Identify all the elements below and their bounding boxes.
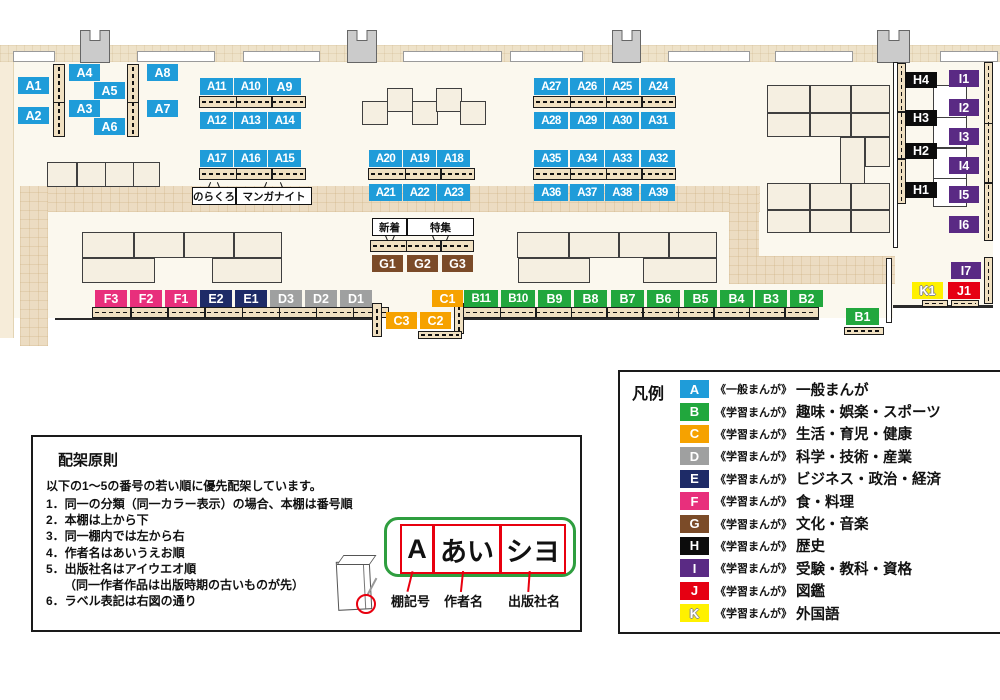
shelf-marker-A36: A36 <box>534 184 568 201</box>
reading-table <box>517 232 717 258</box>
shelf-marker-H4: H4 <box>905 72 937 88</box>
rule-line: 4．作者名はあいうえお順 <box>46 545 391 561</box>
shelf-marker-B2: B2 <box>790 290 823 307</box>
reading-table <box>643 258 717 283</box>
shelf-marker-B6: B6 <box>647 290 680 307</box>
reading-table <box>840 137 865 184</box>
shelf-marker-A26: A26 <box>570 78 604 95</box>
legend-type: 《学習まんが》 <box>715 471 792 487</box>
pillar <box>347 30 377 63</box>
legend-category: 趣味・娯楽・スポーツ <box>796 401 941 422</box>
book-top-edge <box>336 555 376 565</box>
bookshelf <box>127 64 139 137</box>
legend-chip-B: B <box>680 403 709 421</box>
legend-chip-J: J <box>680 582 709 600</box>
shelf-marker-A16: A16 <box>234 150 267 167</box>
shelf-marker-A34: A34 <box>570 150 604 167</box>
legend-box: 凡例 A《一般まんが》一般まんがB《学習まんが》趣味・娯楽・スポーツC《学習まん… <box>618 370 1000 634</box>
shelf-marker-A19: A19 <box>403 150 436 167</box>
shelf-marker-A29: A29 <box>570 112 604 129</box>
pillar <box>80 30 110 63</box>
shelf-marker-A13: A13 <box>234 112 267 129</box>
window <box>137 51 215 62</box>
shelf-marker-I2: I2 <box>949 99 979 116</box>
reading-table <box>436 88 462 112</box>
bookshelf <box>951 300 979 307</box>
left-wall <box>0 62 14 338</box>
legend-rows: A《一般まんが》一般まんがB《学習まんが》趣味・娯楽・スポーツC《学習まんが》生… <box>680 378 941 624</box>
shelf-marker-A30: A30 <box>605 112 639 129</box>
bookshelf <box>418 331 462 339</box>
shelf-marker-A12: A12 <box>200 112 233 129</box>
shelf-marker-A39: A39 <box>641 184 675 201</box>
shelf-marker-A23: A23 <box>437 184 470 201</box>
shelf-marker-A8: A8 <box>147 64 178 81</box>
reading-table <box>518 258 590 283</box>
shelf-marker-H2: H2 <box>905 143 937 159</box>
legend-type: 《学習まんが》 <box>715 560 792 576</box>
shelf-marker-B3: B3 <box>755 290 787 307</box>
rule-line: 3．同一棚内では左から右 <box>46 528 391 544</box>
shelf-marker-I5: I5 <box>949 186 979 203</box>
callout-label: マンガナイト <box>236 187 312 205</box>
shelf-marker-A17: A17 <box>200 150 233 167</box>
legend-category: 受験・教科・資格 <box>796 558 912 579</box>
shelf-marker-I1: I1 <box>949 70 979 87</box>
wall-segment <box>886 258 892 323</box>
reading-table <box>387 88 413 112</box>
bookshelf <box>984 257 993 304</box>
label-location-circle <box>356 594 376 614</box>
shelf-marker-H1: H1 <box>905 182 937 198</box>
legend-category: 文化・音楽 <box>796 513 869 534</box>
bookshelf <box>370 240 474 252</box>
shelf-marker-A24: A24 <box>641 78 675 95</box>
shelf-marker-G2: G2 <box>407 255 438 272</box>
legend-row-C: C《学習まんが》生活・育児・健康 <box>680 423 941 445</box>
shelf-marker-A6: A6 <box>94 118 125 135</box>
shelf-marker-A9: A9 <box>268 78 301 95</box>
legend-chip-D: D <box>680 447 709 465</box>
rule-line: 2．本棚は上から下 <box>46 512 391 528</box>
legend-chip-I: I <box>680 559 709 577</box>
shelf-marker-A32: A32 <box>641 150 675 167</box>
shelf-marker-F2: F2 <box>130 290 162 307</box>
legend-row-H: H《学習まんが》歴史 <box>680 535 941 557</box>
shelf-marker-A31: A31 <box>641 112 675 129</box>
caption-author: 作者名 <box>444 591 483 610</box>
legend-chip-H: H <box>680 537 709 555</box>
legend-chip-A: A <box>680 380 709 398</box>
reading-table <box>362 101 388 125</box>
legend-category: ビジネス・政治・経済 <box>796 468 941 489</box>
bookshelf <box>533 168 676 180</box>
pillar <box>612 30 641 63</box>
legend-type: 《学習まんが》 <box>715 404 792 420</box>
pillar <box>877 30 910 63</box>
shelf-marker-E2: E2 <box>200 290 232 307</box>
caption-shelf-code: 棚記号 <box>391 591 430 610</box>
shelf-marker-K1: K1 <box>912 282 943 299</box>
reading-table <box>460 101 486 125</box>
window <box>403 51 502 62</box>
legend-type: 《学習まんが》 <box>715 583 792 599</box>
legend-chip-E: E <box>680 470 709 488</box>
legend-type: 《学習まんが》 <box>715 516 792 532</box>
legend-category: 歴史 <box>796 535 825 556</box>
shelf-marker-E1: E1 <box>235 290 267 307</box>
reading-table <box>212 258 282 283</box>
shelf-marker-A35: A35 <box>534 150 568 167</box>
shelf-marker-A10: A10 <box>234 78 267 95</box>
window <box>243 51 320 62</box>
bookshelf <box>984 62 993 241</box>
legend-title: 凡例 <box>632 380 664 404</box>
reading-table <box>412 101 438 125</box>
shelf-marker-A11: A11 <box>200 78 233 95</box>
legend-chip-C: C <box>680 425 709 443</box>
shelf-marker-I3: I3 <box>949 128 979 145</box>
bookshelf <box>199 96 306 108</box>
legend-chip-K: K <box>680 604 709 622</box>
callout-label: 特集 <box>407 218 474 236</box>
shelf-marker-G1: G1 <box>372 255 403 272</box>
legend-category: 科学・技術・産業 <box>796 446 912 467</box>
shelf-marker-A4: A4 <box>69 64 100 81</box>
caption-publisher: 出版社名 <box>508 591 560 610</box>
legend-chip-G: G <box>680 515 709 533</box>
reading-table <box>767 85 890 137</box>
aisle-carpet <box>729 186 759 258</box>
bookshelf <box>844 327 884 335</box>
shelf-marker-A1: A1 <box>18 77 49 94</box>
legend-type: 《学習まんが》 <box>715 448 792 464</box>
shelf-marker-B1: B1 <box>846 308 879 325</box>
legend-row-B: B《学習まんが》趣味・娯楽・スポーツ <box>680 400 941 422</box>
bookshelf <box>368 168 475 180</box>
legend-category: 外国語 <box>796 603 840 624</box>
shelf-marker-A5: A5 <box>94 82 125 99</box>
shelf-marker-B9: B9 <box>538 290 571 307</box>
legend-chip-F: F <box>680 492 709 510</box>
wall-line <box>55 318 375 320</box>
shelf-marker-A14: A14 <box>268 112 301 129</box>
shelf-marker-A22: A22 <box>403 184 436 201</box>
shelf-marker-H3: H3 <box>905 110 937 126</box>
shelf-marker-A15: A15 <box>268 150 301 167</box>
bookshelf <box>463 307 819 318</box>
shelf-marker-C3: C3 <box>386 312 417 329</box>
label-author-box: あい <box>433 524 501 574</box>
shelf-marker-F3: F3 <box>95 290 127 307</box>
window <box>940 51 998 62</box>
shelf-marker-A2: A2 <box>18 107 49 124</box>
bookshelf <box>53 64 65 137</box>
shelf-marker-A3: A3 <box>69 100 100 117</box>
reading-table <box>767 183 890 233</box>
reading-table <box>47 162 160 187</box>
shelf-marker-B10: B10 <box>501 290 535 307</box>
shelf-marker-A18: A18 <box>437 150 470 167</box>
shelf-marker-I6: I6 <box>949 216 979 233</box>
shelf-marker-B5: B5 <box>684 290 717 307</box>
bookshelf <box>454 303 464 334</box>
bookshelf <box>92 307 389 318</box>
aisle-carpet <box>20 186 48 346</box>
shelf-marker-A38: A38 <box>605 184 639 201</box>
shelf-marker-F1: F1 <box>165 290 197 307</box>
shelf-marker-A28: A28 <box>534 112 568 129</box>
window <box>510 51 583 62</box>
shelf-marker-A33: A33 <box>605 150 639 167</box>
shelf-marker-D2: D2 <box>305 290 337 307</box>
shelf-marker-A20: A20 <box>369 150 402 167</box>
legend-category: 食・料理 <box>796 491 854 512</box>
callout-label: 新着 <box>372 218 407 236</box>
legend-row-I: I《学習まんが》受験・教科・資格 <box>680 557 941 579</box>
legend-category: 生活・育児・健康 <box>796 423 912 444</box>
shelf-marker-B7: B7 <box>611 290 644 307</box>
shelf-marker-J1: J1 <box>948 282 980 299</box>
legend-type: 《学習まんが》 <box>715 605 792 621</box>
rule-line: 1．同一の分類（同一カラー表示）の場合、本棚は番号順 <box>46 496 391 512</box>
shelf-marker-C1: C1 <box>432 290 463 307</box>
reading-table <box>82 232 282 258</box>
window <box>668 51 750 62</box>
reading-table <box>865 137 890 167</box>
callout-label: のらくろ <box>192 187 236 205</box>
bookshelf <box>199 168 306 180</box>
reading-table <box>82 258 155 283</box>
shelf-marker-D3: D3 <box>270 290 302 307</box>
shelf-marker-I4: I4 <box>949 157 979 174</box>
shelf-marker-A37: A37 <box>570 184 604 201</box>
bookshelf <box>533 96 676 108</box>
shelf-marker-B4: B4 <box>720 290 753 307</box>
rules-intro: 以下の1～5の番号の若い順に優先配架しています。 <box>46 477 322 494</box>
bookshelf <box>922 300 948 307</box>
label-publisher-box: シヨ <box>500 524 566 574</box>
window <box>775 51 853 62</box>
aisle-carpet <box>729 256 895 284</box>
rules-title: 配架原則 <box>58 449 118 470</box>
shelf-marker-C2: C2 <box>420 312 451 329</box>
bookshelf <box>372 303 382 337</box>
legend-row-A: A《一般まんが》一般まんが <box>680 378 941 400</box>
shelf-marker-A21: A21 <box>369 184 402 201</box>
legend-type: 《一般まんが》 <box>715 381 792 397</box>
legend-row-F: F《学習まんが》食・料理 <box>680 490 941 512</box>
window <box>13 51 55 62</box>
wall-line <box>463 318 819 320</box>
legend-type: 《学習まんが》 <box>715 426 792 442</box>
legend-row-E: E《学習まんが》ビジネス・政治・経済 <box>680 468 941 490</box>
legend-type: 《学習まんが》 <box>715 538 792 554</box>
shelf-marker-G3: G3 <box>442 255 473 272</box>
legend-row-J: J《学習まんが》図鑑 <box>680 580 941 602</box>
shelf-marker-A7: A7 <box>147 100 178 117</box>
shelf-marker-A27: A27 <box>534 78 568 95</box>
label-shelf-code-box: A <box>400 524 434 574</box>
shelf-marker-D1: D1 <box>340 290 372 307</box>
shelf-marker-B11: B11 <box>464 290 498 307</box>
legend-row-D: D《学習まんが》科学・技術・産業 <box>680 445 941 467</box>
legend-category: 一般まんが <box>796 379 869 400</box>
legend-row-G: G《学習まんが》文化・音楽 <box>680 512 941 534</box>
shelf-marker-I7: I7 <box>951 262 981 279</box>
legend-category: 図鑑 <box>796 580 825 601</box>
shelf-marker-B8: B8 <box>574 290 607 307</box>
legend-row-K: K《学習まんが》外国語 <box>680 602 941 624</box>
legend-type: 《学習まんが》 <box>715 493 792 509</box>
shelf-marker-A25: A25 <box>605 78 639 95</box>
